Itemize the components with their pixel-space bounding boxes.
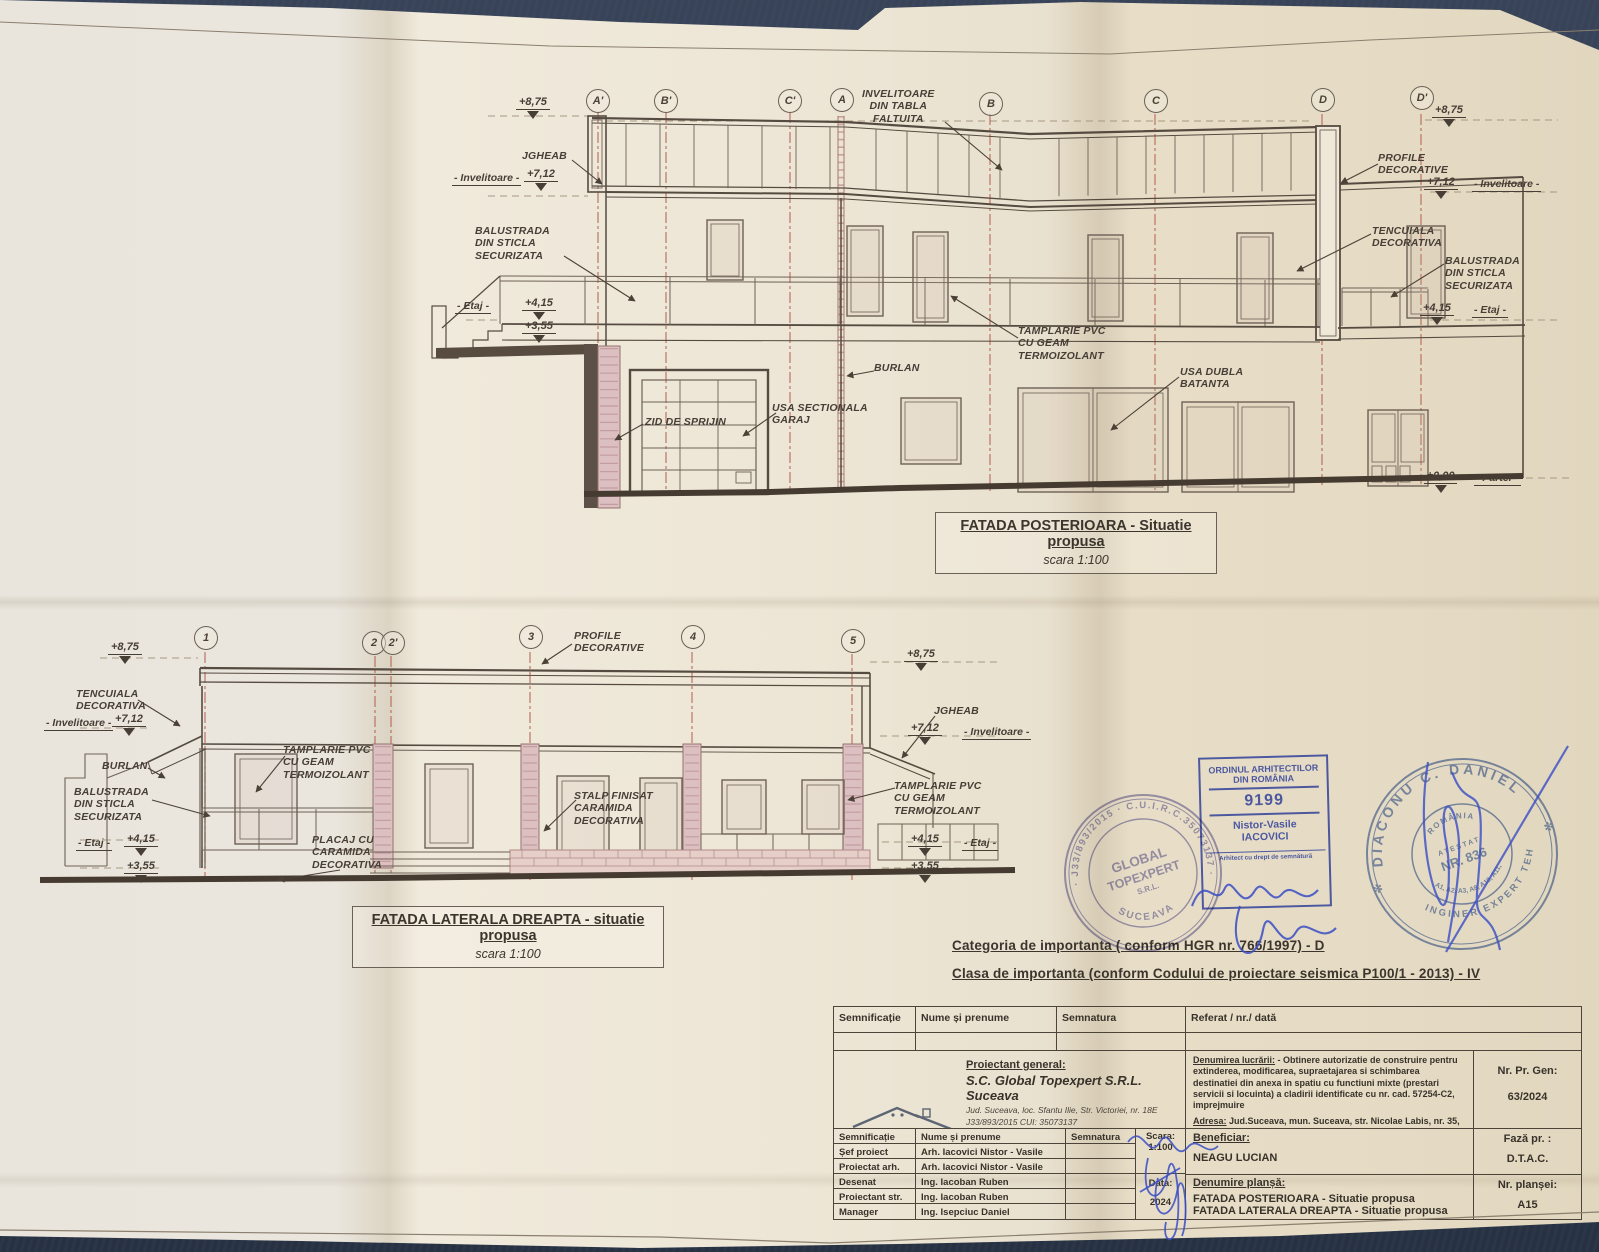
scale-cell: Scara: 1:100 [1136,1129,1186,1174]
level-marker: +8,75 [108,641,142,664]
grid-bubble-label: D [1319,94,1327,106]
annotation: JGHEAB [522,150,567,162]
level-value: +7,12 [1424,176,1458,190]
grid-bubble-label: A' [593,95,604,107]
faza-label: Fază pr. : [1479,1133,1576,1145]
level-marker: ±0,00 [1424,470,1457,493]
exterior-stairs [432,276,502,358]
level-triangle-icon [123,728,135,736]
level-value: ±0,00 [1424,470,1457,484]
level-marker: +3,55 [522,320,556,343]
row-name: Ing. Isepciuc Daniel [916,1204,1066,1219]
row-role: Șef proiect [834,1144,916,1159]
grid-bubble: A [830,88,854,112]
level-triangle-icon [915,663,927,671]
annotation: - Etaj - [962,837,998,851]
svg-text:· J33/893/2015 · C.U.I.R.C.350: · J33/893/2015 · C.U.I.R.C.35073137 · [1052,781,1221,920]
annotation: STALP FINISAT CARAMIDA DECORATIVA [574,790,653,827]
logo-roof-icon [847,1103,957,1129]
oar-number: 9199 [1201,790,1327,811]
star-icon: ✻ [1371,881,1385,898]
oar-footer: Arhitect cu drept de semnătură [1206,849,1326,862]
nr-plansei-value: A15 [1479,1199,1576,1211]
annotation: TAMPLARIE PVC CU GEAM TERMOIZOLANT [894,780,982,817]
row-role: Desenat [834,1174,916,1189]
level-marker: +3,55 [124,860,158,883]
annotation: USA DUBLA BATANTA [1180,366,1243,391]
annotation: PLACAJ CU CARAMIDA DECORATIVA [312,834,382,871]
level-marker: +8,75 [516,96,550,119]
annotation: TENCUIALA DECORATIVA [76,688,146,713]
terrain-band [436,344,598,358]
row-name: Ing. Iacoban Ruben [916,1174,1066,1189]
grid-bubble: D [1311,88,1335,112]
header-referat: Referat / nr./ dată [1186,1007,1581,1033]
faza-value: D.T.A.C. [1479,1153,1576,1165]
grid-bubble: 3 [519,625,543,649]
beneficiar-label: Beneficiar: [1193,1132,1466,1144]
grid-bubble-label: A [838,94,846,106]
grid-bubble: C' [778,89,802,113]
expert-round-stamp: DIACONU C. DANIEL INGINER EXPERT TEHNIC … [1352,742,1572,967]
grid-bubble-label: 5 [850,635,856,647]
row-name: Ing. Iacoban Ruben [916,1189,1066,1204]
drawing-title: FATADA POSTERIOARA - Situatie propusa [946,518,1206,550]
level-triangle-icon [533,335,545,343]
level-value: +3,55 [124,860,158,874]
oar-rule [1209,786,1319,791]
denumire-label: Denumirea lucrării: [1193,1055,1275,1065]
row-name: Arh. Iacovici Nistor - Vasile [916,1159,1066,1174]
annotation: JGHEAB [934,705,979,717]
annotation: PROFILE DECORATIVE [574,630,644,655]
level-triangle-icon [919,737,931,745]
leader-lines [564,122,1444,440]
drawing-scale: scara 1:100 [946,553,1206,567]
level-marker: +8,75 [904,648,938,671]
level-triangle-icon [527,111,539,119]
roof-band [200,668,870,748]
nr-pr-value: 63/2024 [1479,1091,1576,1103]
grid-bubble-label: 2 [371,637,377,649]
grid-bubble-label: B [987,98,995,110]
row-signature [1066,1174,1136,1189]
level-triangle-icon [1443,119,1455,127]
row-role: Proiectant str. [834,1189,916,1204]
level-triangle-icon [1435,485,1447,493]
grid-bubble-label: 2' [389,637,398,649]
beneficiary-cell: Beneficiar: NEAGU LUCIAN [1186,1129,1474,1175]
oar-rule [1210,812,1320,817]
level-marker: +7,12 [112,713,146,736]
plansa-line2: FATADA LATERALA DREAPTA - Situatie propu… [1193,1205,1466,1217]
annotation: TAMPLARIE PVC CU GEAM TERMOIZOLANT [1018,325,1106,362]
mini-header-nume: Nume și prenume [916,1129,1066,1144]
annotation: BALUSTRADA DIN STICLA SECURIZATA [74,786,149,823]
grid-bubble-label: B' [661,95,672,107]
grid-bubble: 5 [841,629,865,653]
retaining-wall [598,346,620,508]
header-semnificatie: Semnificație [834,1007,916,1033]
annotation: INVELITOARE DIN TABLA FALTUITA [862,88,935,125]
beneficiar-value: NEAGU LUCIAN [1193,1152,1466,1164]
level-value: +4,15 [124,833,158,847]
data-value: 2024 [1141,1189,1180,1208]
level-value: +7,12 [908,722,942,736]
scanned-drawing-sheet: A' B' C' A B C D D' +8,75 JGHEAB - Invel… [0,0,1599,1252]
level-value: +4,15 [908,833,942,847]
annotation: - Invelitoare - [1472,178,1541,192]
level-marker: +7,12 [908,722,942,745]
designer-cell: GLOBAL TOPEXPERT Proiectant general: S.C… [834,1051,1186,1129]
proiectant-address: Jud. Suceava, loc. Sfantu Ilie, Str. Vic… [966,1105,1178,1115]
mini-header-semnificatie: Semnificație [834,1129,916,1144]
level-marker: +7,12 [1424,176,1458,199]
grid-bubble-label: 1 [203,632,209,644]
bottom-elevation-drawing [40,628,1040,898]
grid-bubble: 2' [381,631,405,655]
level-value: +7,12 [112,713,146,727]
garage-door [630,370,768,494]
nr-pr-label: Nr. Pr. Gen: [1479,1065,1576,1077]
annotation: PROFILE DECORATIVE [1378,152,1448,177]
level-triangle-icon [535,183,547,191]
row-role: Proiectat arh. [834,1159,916,1174]
mini-header-semnatura: Semnatura [1066,1129,1136,1144]
annotation: - Etaj - [76,837,112,851]
nr-plansei-label: Nr. planșei: [1479,1179,1576,1191]
sheet-name-cell: Denumire planșă: FATADA POSTERIOARA - Si… [1186,1175,1474,1219]
level-marker: +4,15 [124,833,158,856]
drawing-scale: scara 1:100 [363,947,653,961]
proiectant-name: S.C. Global Topexpert S.R.L. Suceava [966,1073,1178,1103]
title-block: Semnificație Nume și prenume Semnatura R… [833,1006,1582,1220]
level-triangle-icon [533,312,545,320]
scara-label: Scara: [1141,1131,1180,1142]
terrace-slab [502,324,1525,342]
expert-country: ROMÂNIA [1423,805,1478,838]
hatched-wall-band [584,344,598,508]
top-drawing-title-box: FATADA POSTERIOARA - Situatie propusa sc… [935,512,1217,574]
drawing-title: FATADA LATERALA DREAPTA - situatie propu… [363,912,653,944]
row-name: Arh. Iacovici Nistor - Vasile [916,1144,1066,1159]
level-triangle-icon [119,656,131,664]
annotation: TENCUIALA DECORATIVA [1372,225,1442,250]
annotation: - Etaj - [455,300,491,314]
sheet-number-cell: Nr. planșei: A15 [1474,1175,1581,1219]
header-nume: Nume și prenume [916,1007,1057,1033]
proiectant-registration: J33/893/2015 CUI: 35073137 [966,1117,1178,1127]
grid-bubble: D' [1410,86,1434,110]
grid-bubble: 1 [194,626,218,650]
level-triangle-icon [919,848,931,856]
bottom-drawing-title-box: FATADA LATERALA DREAPTA - situatie propu… [352,906,664,968]
date-cell: Data: 2024 [1136,1174,1186,1219]
annotation: - Invelitoare - [44,717,113,731]
level-marker: +4,15 [1420,302,1454,325]
scara-value: 1:100 [1141,1142,1180,1153]
header-semnatura: Semnatura [1057,1007,1186,1033]
row-signature [1066,1204,1136,1219]
grid-bubble-label: D' [1417,92,1428,104]
stamp-city: SUCEAVA [1114,890,1178,933]
level-triangle-icon [919,875,931,883]
grid-bubble: A' [586,89,610,113]
row-role: Manager proiect [834,1204,916,1219]
level-value: +8,75 [108,641,142,655]
grid-bubble: C [1144,89,1168,113]
grid-bubble: B [979,92,1003,116]
decorative-profile-tower [1316,126,1340,340]
top-elevation-drawing [430,80,1590,520]
proiectant-label: Proiectant general: [966,1059,1178,1071]
level-triangle-icon [135,848,147,856]
annotation: - Etaj - [1472,304,1508,318]
designer-info: Proiectant general: S.C. Global Topexper… [966,1059,1178,1127]
level-value: +4,15 [1420,302,1454,316]
level-triangle-icon [1435,191,1447,199]
empty-cell [834,1033,916,1051]
annotation: BURLAN [874,362,920,374]
stamp-ring-text: · J33/893/2015 · C.U.I.R.C.35073137 · [1052,781,1221,920]
row-signature [1066,1159,1136,1174]
plansa-line1: FATADA POSTERIOARA - Situatie propusa [1193,1193,1466,1205]
level-triangle-icon [135,875,147,883]
adresa-label: Adresa: [1193,1116,1227,1126]
data-label: Data: [1141,1176,1180,1189]
grid-bubble-label: C' [785,95,796,107]
grid-bubble-label: C [1152,95,1160,107]
annotation: USA SECTIONALA GARAJ [772,402,868,427]
grid-bubble: 4 [681,625,705,649]
adresa-text: Jud.Suceava, mun. Suceava, str. Nicolae … [1193,1116,1460,1129]
level-marker: +4,15 [908,833,942,856]
empty-cell [916,1033,1057,1051]
phase-cell: Fază pr. : D.T.A.C. [1474,1129,1581,1175]
annotation: ZID DE SPRIJIN [645,416,726,428]
glass-balustrade [500,276,1428,326]
annotation: - Invelitoare - [962,726,1031,740]
level-value: +8,75 [516,96,550,110]
level-marker: +3,55 [908,860,942,883]
level-marker: +8,75 [1432,104,1466,127]
row-signature [1066,1189,1136,1204]
work-name-cell: Denumirea lucrării: - Obtinere autorizat… [1186,1051,1474,1129]
level-value: +4,15 [522,297,556,311]
level-value: +3,55 [522,320,556,334]
oar-stamp: ORDINUL ARHITECTILOR DIN ROMÂNIA 9199 Ni… [1198,754,1332,909]
grid-bubble-label: 4 [690,631,696,643]
annotation: TAMPLARIE PVC CU GEAM TERMOIZOLANT [283,744,371,781]
annotation: BURLAN [102,760,148,772]
level-value: +8,75 [904,648,938,662]
level-marker: +4,15 [522,297,556,320]
plansa-label: Denumire planșă: [1193,1177,1466,1189]
row-signature [1066,1144,1136,1159]
grid-bubble-label: 3 [528,631,534,643]
global-topexpert-logo: GLOBAL TOPEXPERT [842,1103,962,1129]
level-value: +3,55 [908,860,942,874]
annotation: BALUSTRADA DIN STICLA SECURIZATA [475,225,550,262]
empty-cell [1057,1033,1186,1051]
project-number-cell: Nr. Pr. Gen: 63/2024 [1474,1051,1581,1129]
annotation: - Invelitoare - [452,172,521,186]
level-value: +8,75 [1432,104,1466,118]
empty-cell [1186,1033,1581,1051]
annotation: - Parter - [1474,472,1521,486]
svg-text:SUCEAVA: SUCEAVA [1114,890,1178,933]
annotation: BALUSTRADA DIN STICLA SECURIZATA [1445,255,1520,292]
level-value: +7,12 [524,168,558,182]
svg-text:ROMÂNIA: ROMÂNIA [1423,805,1478,838]
oar-name-2: IACOVICI [1202,829,1328,844]
importance-class: Clasa de importanta (conform Codului de … [952,966,1480,981]
level-triangle-icon [1431,317,1443,325]
level-marker: +7,12 [524,168,558,191]
grid-bubble: B' [654,89,678,113]
